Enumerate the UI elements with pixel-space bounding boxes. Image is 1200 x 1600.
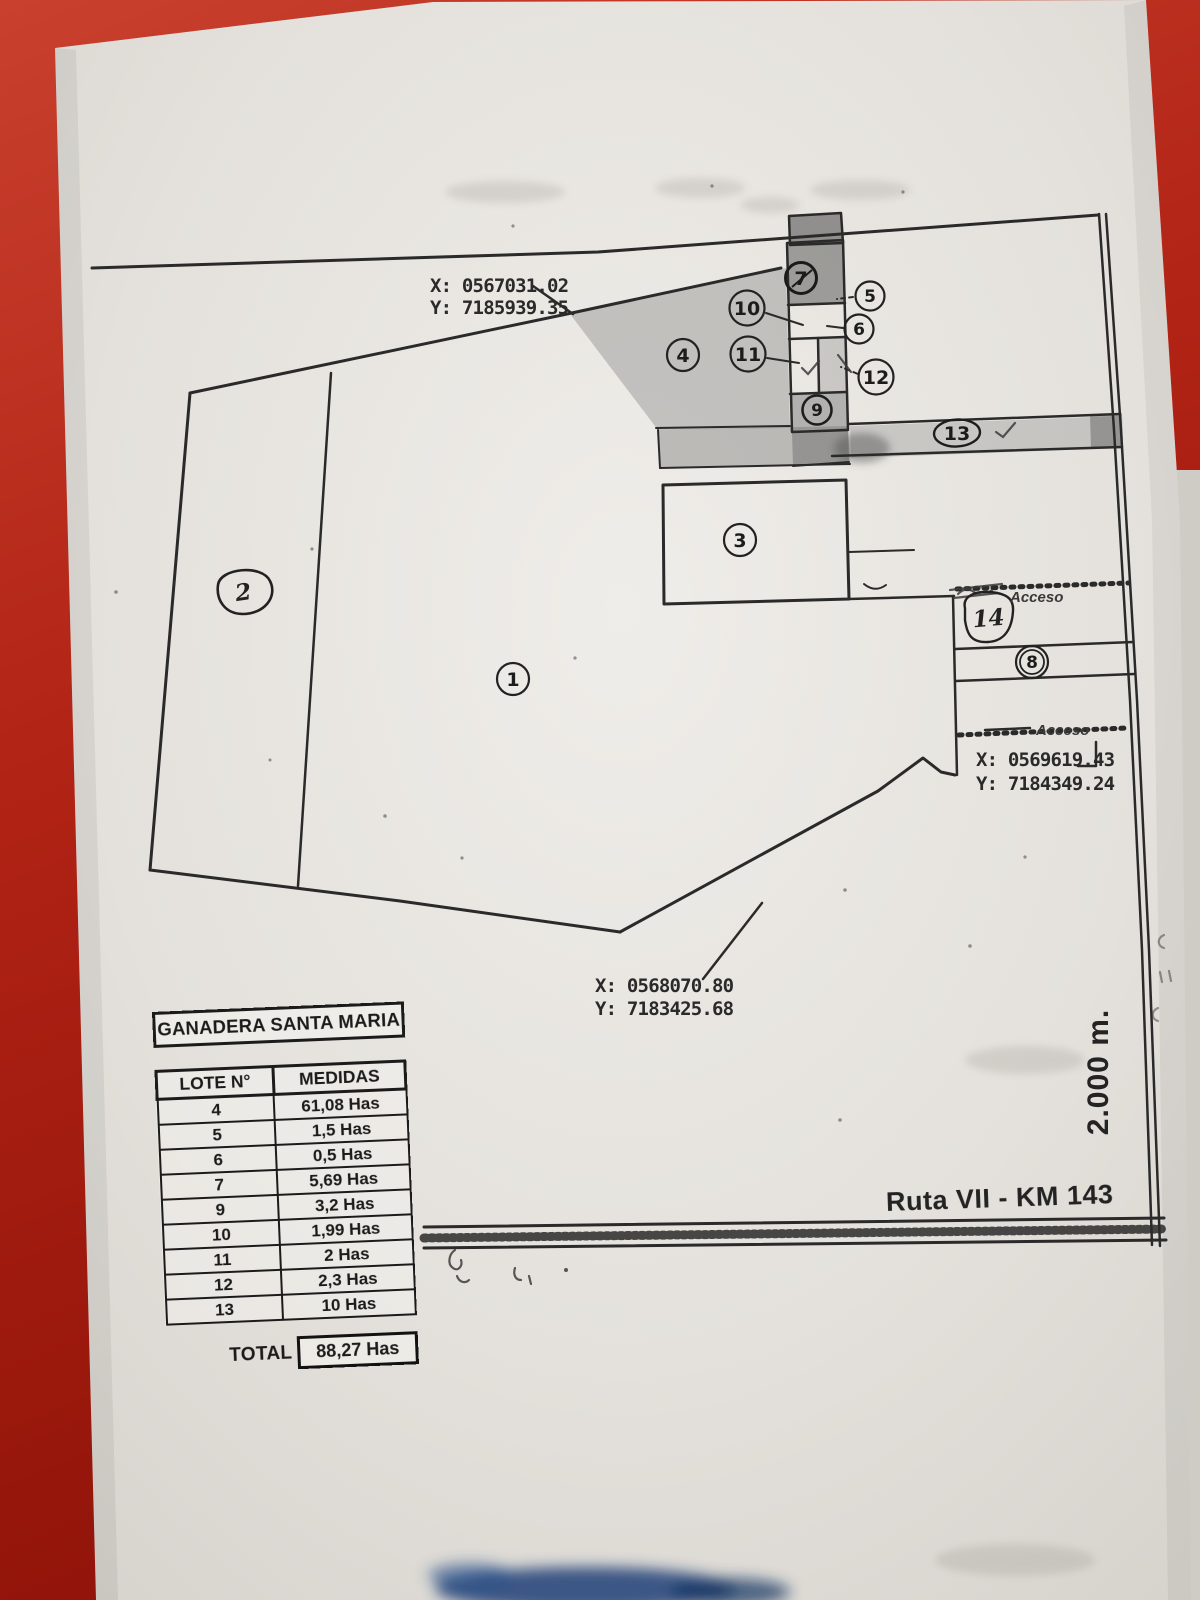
svg-text:9: 9 [811,401,823,421]
svg-text:12: 12 [863,367,889,389]
svg-text:10: 10 [734,298,760,320]
svg-text:13: 13 [944,423,970,445]
svg-text:3: 3 [733,530,746,552]
top-coord-y: Y: 7185939.35 [430,297,569,319]
total-label: TOTAL [229,1342,293,1367]
table-body: 461,08 Has51,5 Has60,5 Has75,69 Has93,2 … [157,1089,415,1325]
measurements-panel: GANADERA SANTA MARIA LOTE N° MEDIDAS 461… [152,1001,419,1374]
scale-label: 2.000 m. [1082,1009,1115,1135]
top-coord-x: X: 0567031.02 [430,275,568,297]
svg-text:11: 11 [735,344,761,366]
lot-measurements-table: LOTE N° MEDIDAS 461,08 Has51,5 Has60,5 H… [154,1059,416,1325]
svg-text:8: 8 [1026,653,1038,673]
medidas-cell: 10 Has [282,1289,415,1320]
bottom-coord-x: X: 0568070.80 [595,975,734,997]
svg-text:1: 1 [506,669,519,691]
total-value: 88,27 Has [297,1331,419,1369]
acceso-upper-label: Acceso [1009,589,1063,606]
photographed-survey-document: 1 2 3 4 5 6 7 8 [0,0,1200,1600]
lot-marker-8: 8 [1016,646,1048,678]
svg-text:4: 4 [676,345,689,367]
acceso-lower-label: Acceso [1035,722,1089,739]
bottom-coord-y: Y: 7183425.68 [595,998,734,1020]
svg-text:14: 14 [971,604,1005,634]
svg-text:5: 5 [864,287,876,307]
right-coord-x: X: 0569619.43 [976,749,1115,771]
right-coord-y: Y: 7184349.24 [976,773,1115,795]
svg-text:6: 6 [853,320,865,340]
lote-cell: 13 [166,1295,284,1325]
